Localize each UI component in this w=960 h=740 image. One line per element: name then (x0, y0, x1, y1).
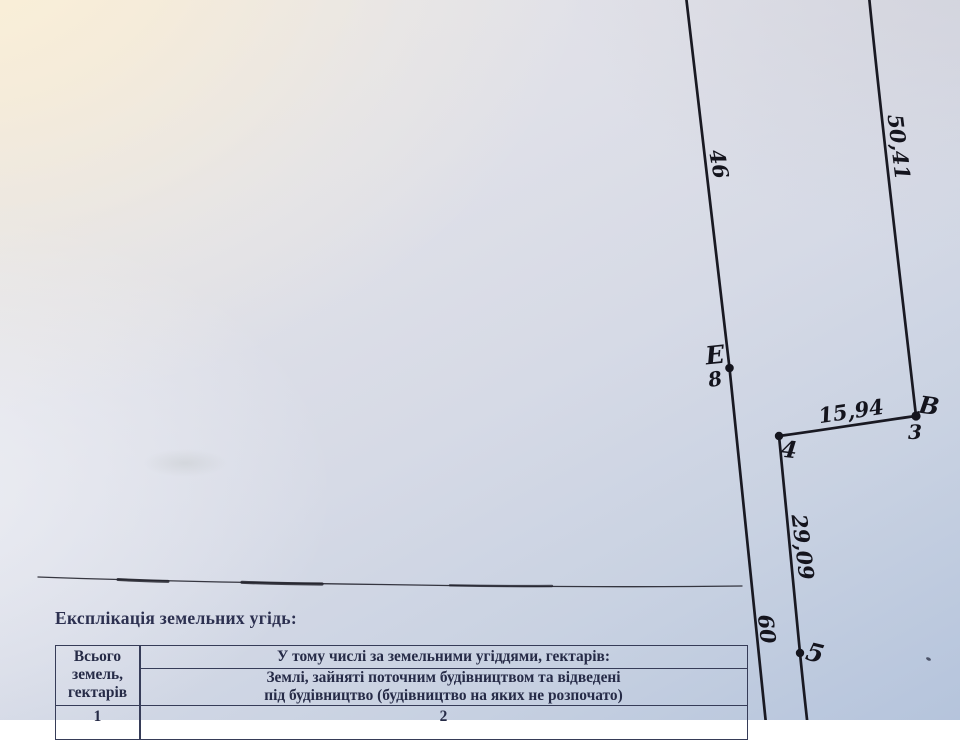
paper-fold-line-thick-1 (118, 580, 168, 582)
row-number-1: 1 (56, 708, 139, 726)
explication-table: Всього земель, гектарів У тому числі за … (55, 645, 748, 740)
col-total-header-line1: Всього (56, 648, 139, 666)
survey-point-dot-e (725, 364, 734, 373)
row-number-2: 2 (140, 708, 747, 726)
explication-title: Експлікація земельних угідь: (55, 608, 297, 629)
col-breakdown-header: У тому числі за земельними угіддями, гек… (140, 648, 747, 666)
point-label-4: 4 (780, 438, 798, 463)
col-breakdown-subheader-line1: Землі, зайняті поточним будівництвом та … (140, 669, 747, 687)
survey-point-dot-5 (796, 649, 804, 657)
dimension-label-60: 60 (755, 613, 779, 645)
col-total-header: Всього земель, гектарів (56, 648, 139, 703)
land-plan-photo: { "document": { "title": "Експлікація зе… (0, 0, 960, 720)
paper-fold-line-thick-2 (242, 582, 322, 584)
col-total-header-line3: гектарів (56, 684, 139, 702)
point-label-v: В (917, 393, 940, 420)
col-total-header-line2: земель, (56, 666, 139, 684)
point-label-e: Е (704, 342, 726, 369)
ink-speck (926, 656, 932, 661)
boundary-line-right (869, 0, 916, 416)
col-breakdown-subheader-line2: під будівництво (будівництво на яких не … (140, 687, 747, 705)
point-label-3: 3 (908, 422, 922, 442)
paper-fold-line-thick-3 (450, 585, 552, 586)
dimension-label-46: 46 (706, 148, 732, 181)
boundary-line-top-left (686, 0, 730, 368)
col-breakdown-subheader: Землі, зайняті поточним будівництвом та … (140, 669, 747, 706)
